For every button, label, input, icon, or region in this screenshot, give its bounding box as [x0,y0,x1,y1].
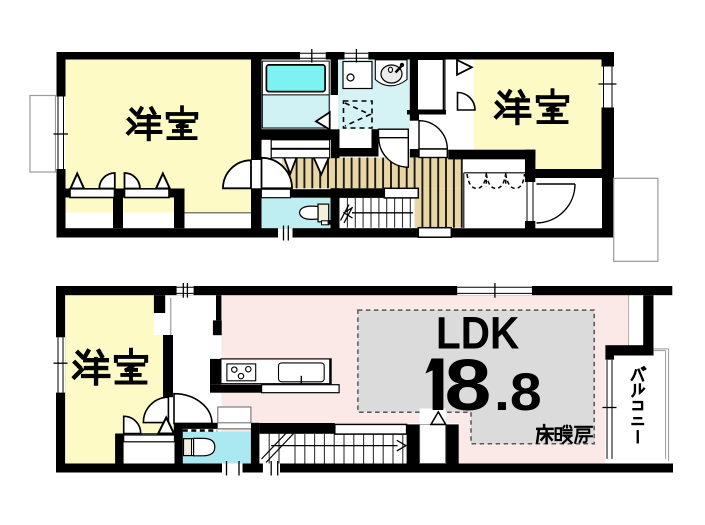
svg-text:.8: .8 [494,362,542,422]
svg-text:8: 8 [445,345,492,426]
